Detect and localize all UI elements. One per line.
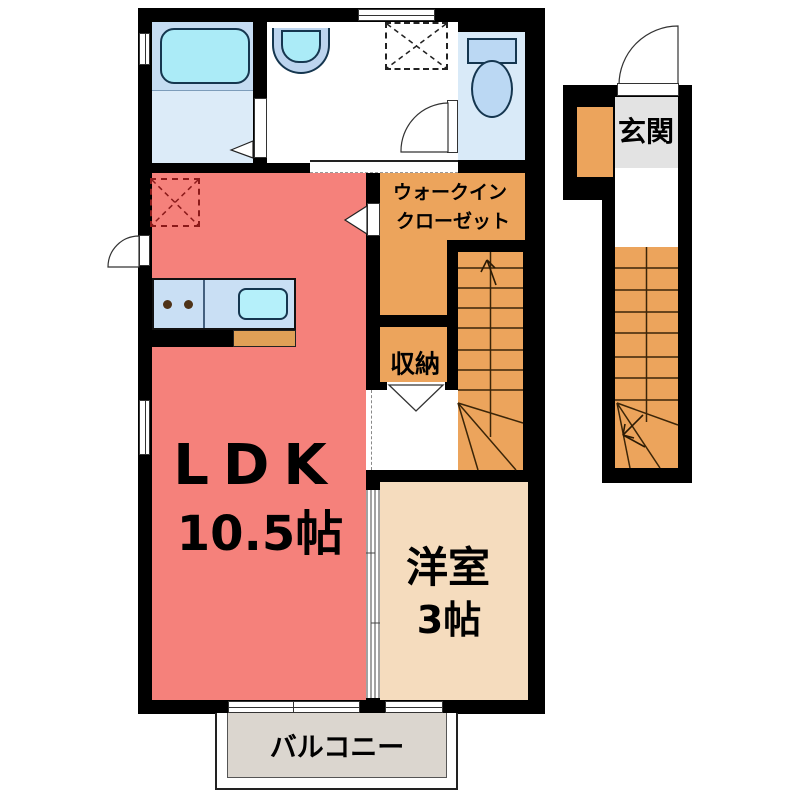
hallway-open-boundary [371,390,372,470]
kitchen-counter-front [233,330,296,347]
refrigerator-x-icon [152,180,198,225]
washbasin-bowl [281,30,321,63]
stairs-up-arrow-icon [623,415,645,447]
ldk-label: LDK [173,438,341,494]
washing-machine-space [385,22,448,70]
ldk-side-door-swing-icon [106,234,140,268]
window-glass-line [386,707,442,708]
refrigerator-space [150,178,200,227]
window-glass-line [359,15,434,16]
toilet-door-swing-icon [399,101,449,153]
ldk-balcony-window [228,701,360,713]
bathroom-window [139,33,150,65]
entrance-hall-floor [615,168,678,247]
stairs-up-arrow-icon [481,260,496,285]
stove-burner-icon [163,300,172,309]
walk-in-closet-label-line1: ウォークイン [393,184,507,203]
kitchen-sink [238,288,288,320]
window-glass-line [145,401,146,454]
walk-in-closet-floor-lower [380,240,447,315]
interior-stair-treads [458,252,523,470]
entrance-stair-treads [615,247,678,468]
storage-door-v-icon [388,384,444,412]
western-room-area-label: 3帖 [417,601,481,639]
shoe-cabinet [577,107,613,177]
washing-machine-x-icon [387,24,446,68]
kitchen-counter [152,278,296,330]
ldk-side-door-leaf [139,235,150,266]
open-passage [310,160,458,173]
window-sash-line [293,702,294,712]
walk-in-closet-label-line2: クローゼット [396,213,510,232]
sliding-door-lines [366,490,380,698]
ldk-area-label: 10.5帖 [177,510,343,558]
stove-burner-icon [184,300,193,309]
genkan-label: 玄関 [618,118,674,146]
entrance-staircase [615,247,678,468]
entrance-door-swing-icon [617,25,680,86]
western-room-balcony-window [385,701,443,713]
floor-plan-canvas: LDK 10.5帖 洋室 3帖 ウォークイン クローゼット 収納 玄関 バルコニ… [0,0,800,800]
western-room-label: 洋室 [406,547,490,589]
window-glass-line [229,707,359,708]
kitchen-wall-stub [152,330,233,347]
toilet-bowl [471,60,513,118]
storage-label: 収納 [390,352,440,377]
window-glass-line [145,34,146,64]
bathroom-door-leaf [254,98,267,158]
balcony-label: バルコニー [270,735,404,762]
bathroom-door-fold-icon [230,140,254,159]
ldk-western-sliding-door [366,490,380,698]
walk-in-closet-door-fold-icon [344,205,368,235]
entrance-door-leaf [617,83,679,96]
bathtub [160,28,250,84]
counter-divider [203,280,205,328]
ldk-side-window [139,400,150,455]
washroom-top-window [358,9,435,21]
interior-staircase [458,252,523,470]
walk-in-closet-door-leaf [367,203,380,236]
